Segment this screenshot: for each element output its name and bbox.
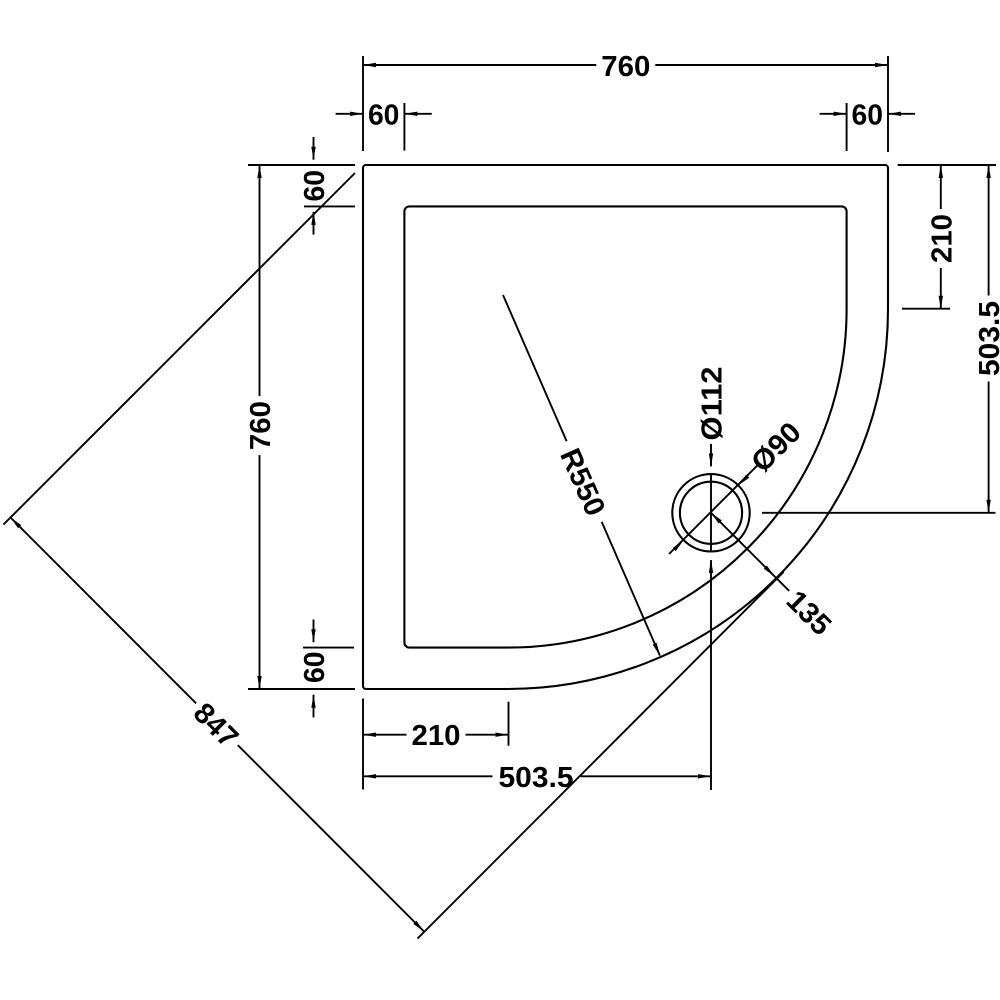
svg-text:210: 210 — [412, 720, 461, 752]
svg-text:60: 60 — [852, 99, 884, 131]
svg-text:503.5: 503.5 — [499, 762, 574, 794]
svg-text:210: 210 — [926, 214, 958, 263]
svg-text:760: 760 — [245, 401, 277, 450]
svg-text:760: 760 — [601, 51, 650, 83]
svg-text:60: 60 — [299, 170, 331, 202]
svg-text:503.5: 503.5 — [974, 301, 1000, 376]
svg-text:Ø112: Ø112 — [696, 367, 728, 441]
svg-text:60: 60 — [368, 99, 400, 131]
svg-text:60: 60 — [299, 652, 331, 684]
